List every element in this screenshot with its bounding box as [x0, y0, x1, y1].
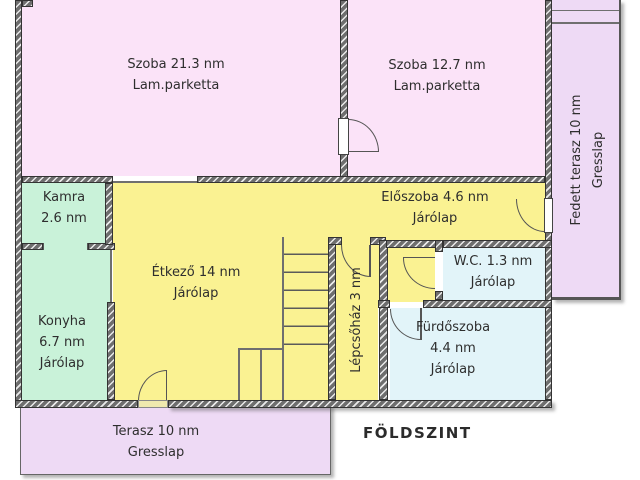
etkezo-floor: Járólap: [152, 284, 241, 305]
etkezo-name: Étkező 14 nm: [152, 263, 241, 284]
wall-wc-left-upper: [435, 240, 443, 252]
wall-szoba-divider-upper: [340, 0, 348, 119]
wall-wc-left-lower: [435, 291, 443, 300]
wall-wc-top: [443, 240, 552, 248]
floor-title: FÖLDSZINT: [363, 424, 472, 442]
stairs-lower-step-2: [260, 348, 262, 400]
terasz-floor: Gresslap: [113, 443, 199, 464]
wall-middle-horizontal-right: [197, 176, 545, 183]
wall-lepcsohaz-top-left: [328, 237, 342, 245]
stairs-upper-flight: [284, 237, 329, 345]
label-etkezo: Étkező 14 nm Járólap: [152, 263, 241, 305]
door-gap-kamra: [43, 243, 88, 250]
wall-furdoszoba-top-left: [378, 300, 390, 308]
label-lepcsohaz: Lépcsőház 3 nm: [346, 267, 368, 373]
konyha-floor: Járólap: [38, 354, 86, 375]
kamra-name: Kamra: [41, 188, 87, 209]
label-terasz: Terasz 10 nm Gresslap: [113, 422, 199, 464]
kamra-area: 2.6 nm: [41, 209, 87, 230]
wall-middle-horizontal-left: [22, 176, 113, 183]
door-open-leaf-lepcsohaz: [369, 245, 371, 277]
terasz-name: Terasz 10 nm: [113, 422, 199, 443]
door-open-leaf-wc: [403, 257, 435, 259]
wall-left-outer: [15, 0, 22, 408]
wall-kamra-bottom-left: [22, 243, 43, 250]
wall-kamra-right: [105, 183, 113, 245]
furdoszoba-floor: Járólap: [416, 360, 490, 381]
door-leaf-szoba-divider: [338, 118, 349, 155]
label-szoba2: Szoba 12.7 nm Lam.parketta: [388, 56, 485, 98]
fedett-terasz-step-line-1: [552, 10, 619, 11]
wall-right-outer-upper: [545, 0, 552, 199]
fedett-terasz-floor: Gresslap: [588, 94, 610, 225]
szoba2-floor: Lam.parketta: [388, 77, 485, 98]
fedett-terasz-step-line-2: [552, 22, 619, 24]
furdoszoba-name: Fürdőszoba: [416, 318, 490, 339]
wc-name: W.C. 1.3 nm: [454, 252, 533, 273]
eloszoba-floor: Járólap: [381, 209, 488, 230]
konyha-name: Konyha: [38, 312, 86, 333]
label-szoba1: Szoba 21.3 nm Lam.parketta: [127, 55, 224, 97]
lepcsohaz-name: Lépcsőház 3 nm: [346, 267, 368, 373]
wall-bottom-right: [168, 400, 552, 408]
wall-furdoszoba-top-right: [423, 300, 552, 308]
label-kamra: Kamra 2.6 nm: [41, 188, 87, 230]
wc-floor: Járólap: [454, 273, 533, 294]
wall-bottom-left: [15, 400, 138, 408]
opening-konyha-etkezo: [110, 245, 112, 302]
label-furdoszoba: Fürdőszoba 4.4 nm Járólap: [416, 318, 490, 380]
wall-top-left-stub: [22, 0, 33, 7]
wall-lepcsohaz-left: [328, 237, 336, 400]
label-fedett-terasz: Fedett terasz 10 nm Gresslap: [566, 94, 610, 225]
label-wc: W.C. 1.3 nm Járólap: [454, 252, 533, 294]
door-open-leaf-terasz: [166, 370, 168, 401]
konyha-area: 6.7 nm: [38, 333, 86, 354]
eloszoba-name: Előszoba 4.6 nm: [381, 188, 488, 209]
door-open-leaf-szoba-divider: [348, 151, 379, 153]
door-sill-terasz: [138, 400, 168, 408]
floor-plan: Szoba 21.3 nm Lam.parketta Szoba 12.7 nm…: [0, 0, 640, 480]
door-leaf-entrance: [544, 198, 553, 233]
szoba1-name: Szoba 21.3 nm: [127, 55, 224, 76]
wall-right-outer-lower: [545, 303, 552, 400]
opening-szoba1-etkezo: [113, 181, 197, 183]
fedett-terasz-name: Fedett terasz 10 nm: [566, 94, 588, 225]
stairs-lower-step-1: [238, 348, 240, 400]
label-konyha: Konyha 6.7 nm Járólap: [38, 312, 86, 374]
wall-konyha-right: [107, 302, 115, 400]
label-eloszoba: Előszoba 4.6 nm Járólap: [381, 188, 488, 230]
furdoszoba-area: 4.4 nm: [416, 339, 490, 360]
szoba2-name: Szoba 12.7 nm: [388, 56, 485, 77]
wall-lepcsohaz-right: [379, 240, 388, 400]
szoba1-floor: Lam.parketta: [127, 76, 224, 97]
